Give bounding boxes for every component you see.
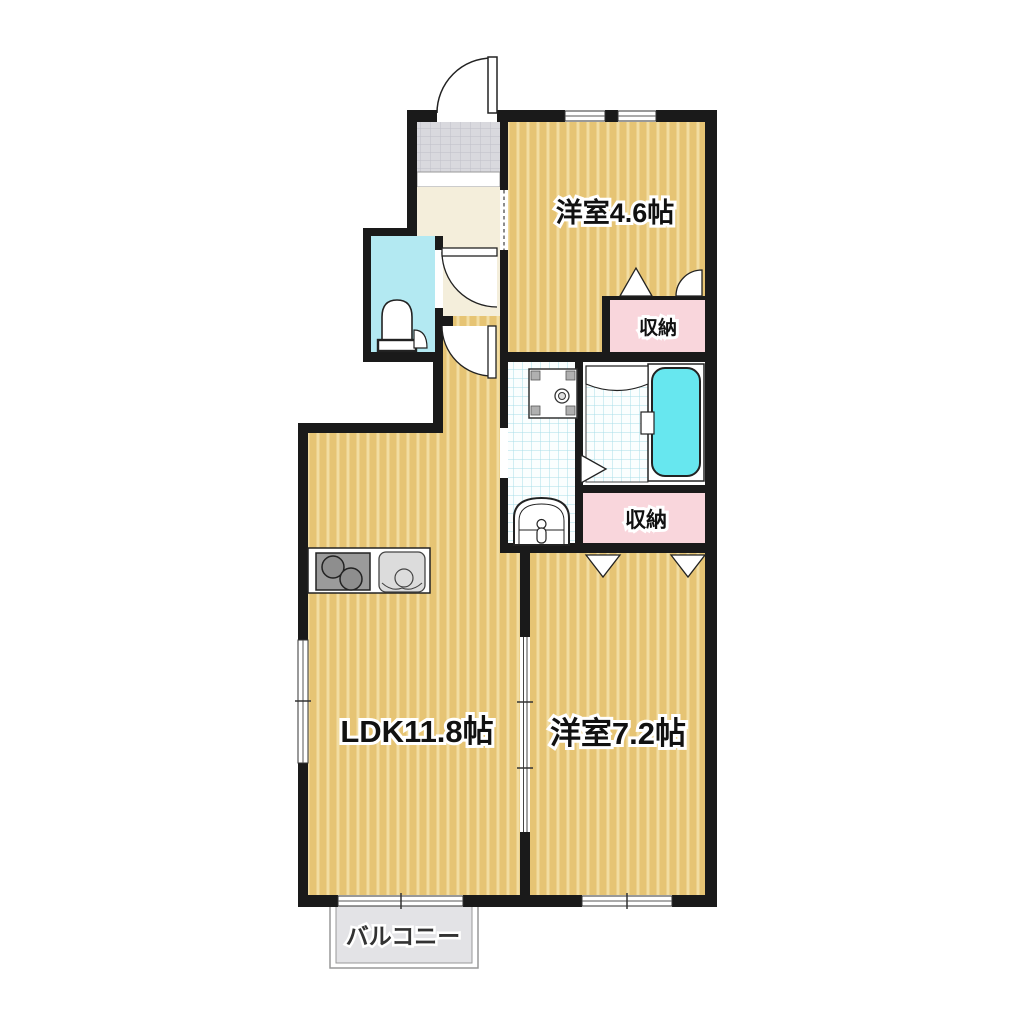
- kitchen-counter: [308, 548, 430, 593]
- western-room-2-label: 洋室7.2帖: [550, 716, 686, 751]
- kitchen-sink-icon: [379, 552, 425, 592]
- ldk-label: LDK11.8帖: [340, 714, 493, 749]
- washing-machine-pan-icon: [529, 369, 577, 418]
- storage-bottom-label: 収納: [625, 508, 667, 532]
- floor-plan: 洋室4.6帖 収納 収納 LDK11.8帖 洋室7.2帖 バルコニー: [0, 0, 1024, 1024]
- balcony-label: バルコニー: [346, 923, 461, 949]
- floor-plan-drawing: 洋室4.6帖 収納 収納 LDK11.8帖 洋室7.2帖 バルコニー: [0, 0, 1024, 1024]
- western-room-1-label: 洋室4.6帖: [556, 197, 675, 228]
- bath-counter-icon: [586, 366, 648, 391]
- window-icon: [582, 893, 672, 909]
- kitchen-stove-icon: [316, 553, 370, 590]
- room1-door-icon: [500, 190, 508, 250]
- storage-top-label: 収納: [639, 316, 677, 339]
- window-icon: [565, 111, 605, 121]
- entrance-door-icon: [437, 57, 497, 122]
- window-icon: [618, 111, 656, 121]
- washroom-opening: [500, 428, 508, 478]
- washbasin-icon: [514, 498, 569, 545]
- bathtub-icon: [641, 364, 704, 481]
- entry-floor: [417, 122, 500, 172]
- ldk-floor: [308, 433, 500, 553]
- hallway-floor: [417, 187, 500, 236]
- entry-step: [417, 172, 500, 187]
